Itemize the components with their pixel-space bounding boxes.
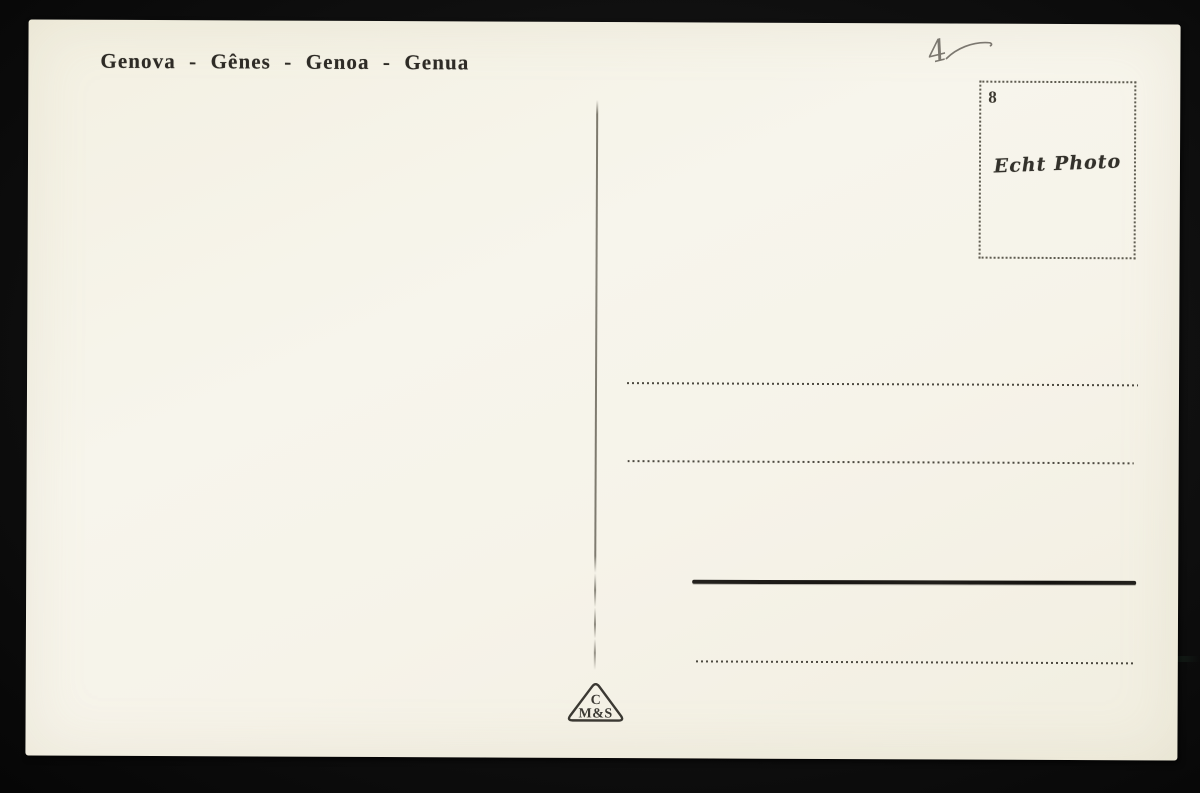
postcard-back: Genova - Gênes - Genoa - Genua 4 8 Echt … [25, 19, 1180, 760]
address-line-2 [628, 460, 1134, 464]
address-line-3-solid [692, 580, 1136, 585]
publisher-logo-line2: M&S [578, 706, 612, 721]
stamp-box-number: 8 [988, 88, 997, 108]
pencil-swoosh [946, 42, 991, 58]
pencil-numeral: 4 [923, 33, 951, 72]
address-line-1 [627, 382, 1138, 386]
publisher-logo-triangle: C M&S [561, 678, 631, 728]
handwritten-pencil-mark: 4 [894, 27, 994, 77]
stamp-box-brand-text: Echt Photo [981, 150, 1135, 178]
center-divider-line [594, 100, 598, 670]
address-line-4 [696, 660, 1136, 664]
stamp-box: 8 Echt Photo [979, 81, 1137, 260]
postcard-title: Genova - Gênes - Genoa - Genua [100, 49, 469, 76]
postcard-photo: Genova - Gênes - Genoa - Genua 4 8 Echt … [0, 0, 1200, 793]
